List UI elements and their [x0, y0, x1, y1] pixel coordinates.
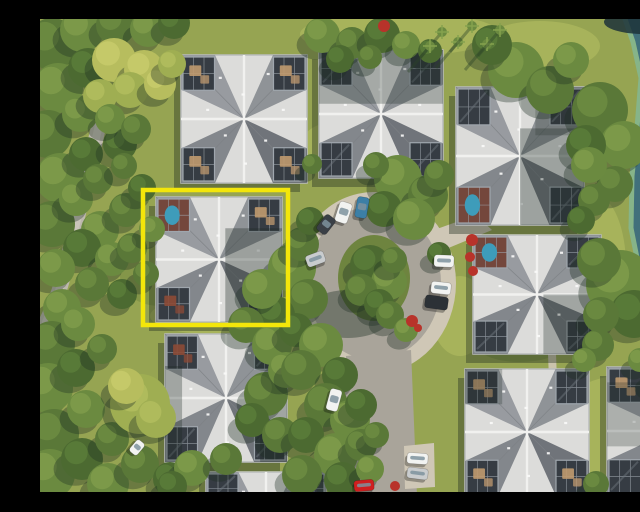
patio-furniture: [164, 296, 176, 306]
roof-vent: [199, 275, 202, 277]
roof-vent: [344, 104, 347, 106]
tree-highlight: [78, 270, 97, 289]
tree-highlight: [285, 458, 307, 480]
patio-furniture: [189, 156, 201, 167]
tree-highlight: [245, 272, 267, 294]
tree-highlight: [360, 47, 373, 60]
tree-highlight: [70, 393, 91, 414]
scene-svg: [40, 16, 640, 496]
lanai-cage: [467, 460, 498, 493]
patio-furniture: [280, 156, 292, 167]
tree-highlight: [339, 29, 357, 47]
tree-highlight: [284, 353, 306, 375]
tree-highlight: [397, 201, 420, 224]
roof-vent: [361, 129, 364, 131]
roof-vent: [224, 134, 227, 136]
roof-vent: [490, 422, 493, 424]
lanai-cage: [458, 89, 490, 125]
roof-vent: [517, 309, 520, 311]
patio-furniture: [255, 207, 267, 217]
lanai-cage: [274, 57, 306, 90]
patio-furniture: [573, 478, 582, 486]
roof-vent: [202, 356, 205, 358]
flowering-bush: [468, 266, 478, 276]
patio-furniture: [200, 166, 209, 174]
roof-vent: [189, 388, 192, 390]
lanai-cage: [475, 321, 507, 352]
tree-highlight: [291, 420, 311, 440]
patio-furniture: [184, 354, 193, 362]
roof-vent: [537, 335, 540, 337]
roof-vent: [242, 215, 245, 217]
tree-highlight: [72, 140, 91, 159]
roof-vent: [244, 163, 247, 165]
tree-highlight: [556, 45, 576, 65]
patio-furniture: [280, 65, 292, 76]
tree-highlight: [328, 47, 343, 62]
lanai-cage: [158, 288, 190, 321]
patio-furniture: [175, 305, 184, 313]
roof-vent: [194, 218, 197, 220]
tree-highlight: [177, 453, 197, 473]
tree-highlight: [378, 303, 393, 318]
patio-furniture: [291, 75, 300, 83]
roof-vent: [401, 134, 404, 136]
patio-furniture: [484, 478, 493, 486]
roof-vent: [549, 387, 552, 389]
patio-furniture: [562, 468, 574, 478]
tree-highlight: [124, 116, 141, 133]
tree-highlight: [353, 248, 375, 270]
tree-highlight: [383, 249, 397, 263]
tree-highlight: [327, 465, 347, 485]
tree-highlight: [86, 82, 105, 101]
lanai-cage: [458, 187, 490, 223]
car-windshield: [437, 258, 451, 262]
roof-vent: [564, 422, 567, 424]
patio-furniture: [173, 344, 185, 355]
roof-vent: [219, 302, 222, 304]
roof-vent: [500, 173, 503, 175]
tree-highlight: [427, 162, 444, 179]
tree-highlight: [369, 194, 389, 214]
tree-highlight: [304, 156, 315, 167]
tree-highlight: [585, 473, 599, 487]
roof-vent: [511, 255, 514, 257]
roof-vent: [482, 145, 485, 147]
tree-highlight: [325, 360, 345, 380]
tree-highlight: [160, 473, 177, 490]
tree-highlight: [365, 424, 379, 438]
tree-highlight: [160, 52, 175, 67]
pool: [165, 206, 180, 226]
tree-highlight: [40, 252, 61, 273]
tree-highlight: [113, 155, 127, 169]
tree-highlight: [303, 326, 327, 350]
letterbox-bottom: [40, 492, 640, 496]
tree-highlight: [238, 406, 257, 425]
roof-vent: [507, 447, 510, 449]
roof-vent: [206, 109, 209, 111]
tree-highlight: [91, 466, 114, 489]
tree-highlight: [348, 276, 366, 294]
tree-highlight: [66, 232, 87, 253]
tree-highlight: [96, 41, 120, 65]
tree-highlight: [577, 86, 608, 117]
tree-highlight: [348, 391, 366, 409]
tree-highlight: [65, 441, 88, 464]
roof-vent: [534, 271, 537, 273]
roof-vent: [267, 73, 270, 75]
lanai-cage: [321, 143, 352, 176]
pool: [465, 194, 480, 216]
lanai-cage: [167, 336, 198, 369]
car-silver: [404, 467, 429, 484]
tree-highlight: [127, 53, 149, 75]
tree-highlight: [585, 331, 603, 349]
tree-highlight: [139, 401, 161, 423]
tree-highlight: [574, 150, 594, 170]
tree-highlight: [358, 457, 373, 472]
roof-vent: [224, 372, 227, 374]
tree-highlight: [86, 166, 103, 183]
roof-vent: [264, 139, 267, 141]
tree-highlight: [60, 352, 81, 373]
roof-vent: [206, 413, 209, 415]
roof-vent: [499, 285, 502, 287]
tree-highlight: [581, 241, 605, 265]
tree-highlight: [586, 300, 606, 320]
lanai-cage: [475, 237, 507, 268]
tree-highlight: [574, 350, 587, 363]
roof-vent: [219, 77, 222, 79]
lanai-cage: [249, 199, 281, 232]
lanai-cage: [183, 148, 215, 181]
flowering-bush: [378, 20, 390, 32]
tree-highlight: [394, 33, 409, 48]
tree-highlight: [298, 209, 313, 224]
car-white: [432, 255, 455, 271]
house-h7: [458, 369, 589, 496]
roof-vent: [547, 452, 550, 454]
tree-highlight: [46, 292, 67, 313]
pool: [482, 243, 497, 262]
patio-furniture: [473, 468, 485, 478]
tree-highlight: [604, 125, 630, 151]
tree-highlight: [307, 20, 327, 40]
tree-highlight: [213, 445, 231, 463]
lanai-cage: [183, 57, 215, 90]
flowering-bush: [465, 252, 475, 262]
patio-furniture: [189, 65, 201, 76]
lanai-cage: [609, 460, 640, 493]
roof-vent: [517, 128, 520, 130]
patio-furniture: [200, 75, 209, 83]
aerial-photo: [40, 16, 640, 496]
roof-vent: [418, 104, 421, 106]
tree-highlight: [115, 75, 135, 95]
tree-highlight: [569, 128, 591, 150]
roof-vent: [560, 252, 563, 254]
tree-highlight: [111, 371, 131, 391]
tree-highlight: [90, 336, 107, 353]
tree-highlight: [291, 282, 313, 304]
tree-shade-on-roof: [465, 369, 502, 404]
tree-highlight: [265, 420, 285, 440]
tree-highlight: [365, 154, 379, 168]
tree-highlight: [110, 281, 127, 298]
car-white: [404, 452, 428, 468]
flowering-bush: [390, 481, 400, 491]
flowering-bush: [414, 324, 422, 332]
patio-furniture: [266, 217, 275, 225]
roof-vent: [494, 110, 497, 112]
roof-vent: [282, 109, 285, 111]
tree-shade-on-roof: [607, 382, 640, 446]
roof-vent: [181, 250, 184, 252]
letterbox-top: [40, 16, 640, 19]
roof-vent: [525, 407, 528, 409]
car-body: [424, 294, 449, 310]
tree-highlight: [64, 310, 83, 329]
roof-vent: [216, 235, 219, 237]
tree-highlight: [98, 106, 115, 123]
house-h1: [174, 55, 307, 192]
tree-highlight: [581, 186, 599, 204]
roof-vent: [575, 285, 578, 287]
flowering-bush: [466, 234, 478, 246]
tree-highlight: [569, 208, 584, 223]
roof-vent: [241, 93, 244, 95]
roof-vent: [527, 475, 530, 477]
roof-vent: [502, 390, 505, 392]
